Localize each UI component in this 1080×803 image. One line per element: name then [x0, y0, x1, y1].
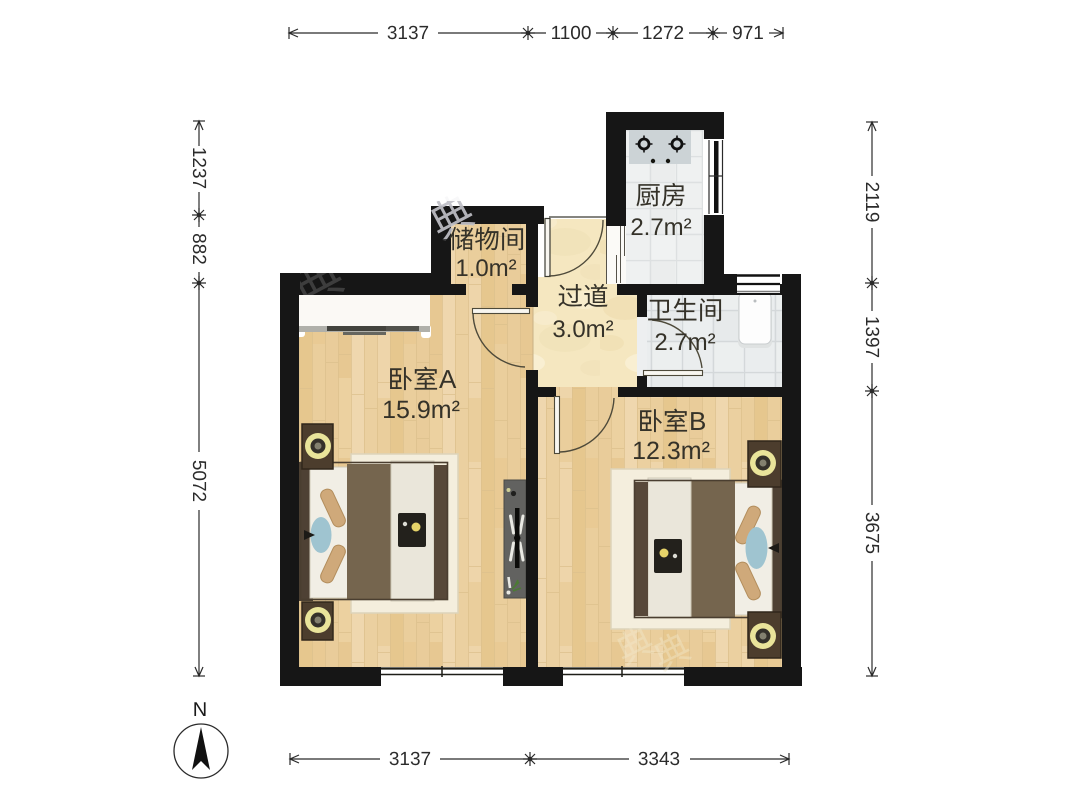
svg-text:1.0m²: 1.0m²: [455, 255, 516, 282]
svg-text:1100: 1100: [551, 23, 592, 44]
svg-text:2.7m²: 2.7m²: [630, 214, 691, 241]
svg-text:3137: 3137: [387, 23, 429, 44]
svg-text:1272: 1272: [642, 23, 684, 44]
svg-text:15.9m²: 15.9m²: [382, 396, 460, 424]
svg-text:5072: 5072: [188, 460, 209, 502]
svg-text:12.3m²: 12.3m²: [632, 437, 710, 465]
svg-text:3137: 3137: [389, 749, 431, 770]
svg-text:3343: 3343: [638, 749, 680, 770]
svg-text:1397: 1397: [861, 316, 882, 358]
svg-text:A: A: [439, 364, 457, 394]
svg-text:1237: 1237: [188, 147, 209, 189]
svg-text:N: N: [193, 699, 207, 721]
svg-text:882: 882: [188, 233, 209, 265]
svg-text:2.7m²: 2.7m²: [654, 329, 715, 356]
svg-text:3675: 3675: [861, 512, 882, 554]
svg-text:971: 971: [732, 23, 764, 44]
svg-text:3.0m²: 3.0m²: [552, 316, 613, 343]
svg-text:B: B: [689, 406, 706, 436]
svg-text:2119: 2119: [861, 182, 882, 223]
